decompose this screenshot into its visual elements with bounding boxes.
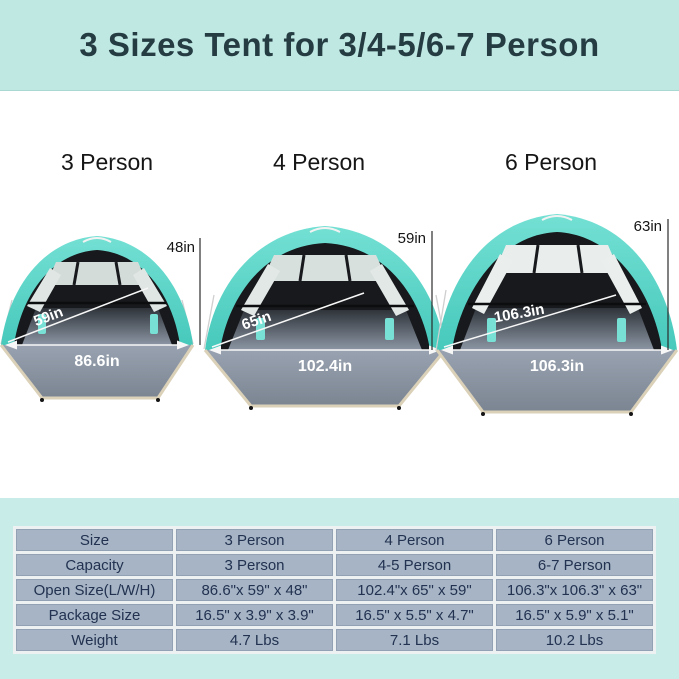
tent2-caption: 4 Person — [273, 149, 365, 175]
pull-tab — [385, 318, 394, 340]
spec-cell: 16.5" x 3.9" x 3.9" — [176, 604, 333, 626]
mesh-window-center — [262, 255, 388, 281]
table-row-open-size: Open Size(L/W/H) 86.6"x 59" x 48" 102.4"… — [16, 579, 653, 601]
tent1-width-label: 86.6in — [74, 353, 119, 370]
spec-cell: 106.3"x 106.3" x 63" — [496, 579, 653, 601]
spec-cell: 4.7 Lbs — [176, 629, 333, 651]
tent-3person-illustration: 86.6in 59in 48in — [1, 236, 200, 402]
spec-table: Size 3 Person 4 Person 6 Person Capacity… — [13, 526, 656, 654]
stake-dot — [156, 398, 160, 402]
row-label: Capacity — [16, 554, 173, 576]
table-row-size: Size 3 Person 4 Person 6 Person — [16, 529, 653, 551]
spec-section: Size 3 Person 4 Person 6 Person Capacity… — [0, 498, 679, 679]
spec-cell: 6-7 Person — [496, 554, 653, 576]
spec-cell: 86.6"x 59" x 48" — [176, 579, 333, 601]
stake-dot — [40, 398, 44, 402]
header-banner: 3 Sizes Tent for 3/4-5/6-7 Person — [0, 0, 679, 91]
stake-dot — [481, 412, 485, 416]
spec-cell: 10.2 Lbs — [496, 629, 653, 651]
table-row-weight: Weight 4.7 Lbs 7.1 Lbs 10.2 Lbs — [16, 629, 653, 651]
tent3-height-label: 63in — [634, 218, 662, 235]
row-label: Weight — [16, 629, 173, 651]
spec-cell: 16.5" x 5.9" x 5.1" — [496, 604, 653, 626]
spec-cell: 4-5 Person — [336, 554, 493, 576]
stake-dot — [629, 412, 633, 416]
table-row-capacity: Capacity 3 Person 4-5 Person 6-7 Person — [16, 554, 653, 576]
spec-cell: 7.1 Lbs — [336, 629, 493, 651]
row-label: Open Size(L/W/H) — [16, 579, 173, 601]
tent-6person-illustration: 106.3in 106.3in 63in — [436, 214, 677, 416]
tent-4person-illustration: 102.4in 65in 59in — [204, 226, 446, 410]
spec-cell: 16.5" x 5.5" x 4.7" — [336, 604, 493, 626]
page-title: 3 Sizes Tent for 3/4-5/6-7 Person — [79, 26, 599, 64]
tent1-caption: 3 Person — [61, 149, 153, 175]
spec-cell: 3 Person — [176, 554, 333, 576]
table-row-package-size: Package Size 16.5" x 3.9" x 3.9" 16.5" x… — [16, 604, 653, 626]
stake-dot — [249, 406, 253, 410]
spec-cell: 3 Person — [176, 529, 333, 551]
pull-tab — [617, 318, 626, 342]
spec-cell: 6 Person — [496, 529, 653, 551]
spec-cell: 102.4"x 65" x 59" — [336, 579, 493, 601]
mesh-window-center — [494, 245, 620, 273]
stake-dot — [397, 406, 401, 410]
mesh-window-center — [46, 262, 148, 285]
row-label: Size — [16, 529, 173, 551]
tent3-width-label: 106.3in — [530, 358, 584, 375]
row-label: Package Size — [16, 604, 173, 626]
pull-tab — [150, 314, 158, 334]
tent2-width-label: 102.4in — [298, 358, 352, 375]
tent2-height-label: 59in — [398, 230, 426, 247]
spec-cell: 4 Person — [336, 529, 493, 551]
tent3-caption: 6 Person — [505, 149, 597, 175]
tent1-height-label: 48in — [167, 239, 195, 256]
tent-size-diagram: 3 Person 4 Person 6 Person 86.6in 59in 4… — [0, 91, 679, 498]
